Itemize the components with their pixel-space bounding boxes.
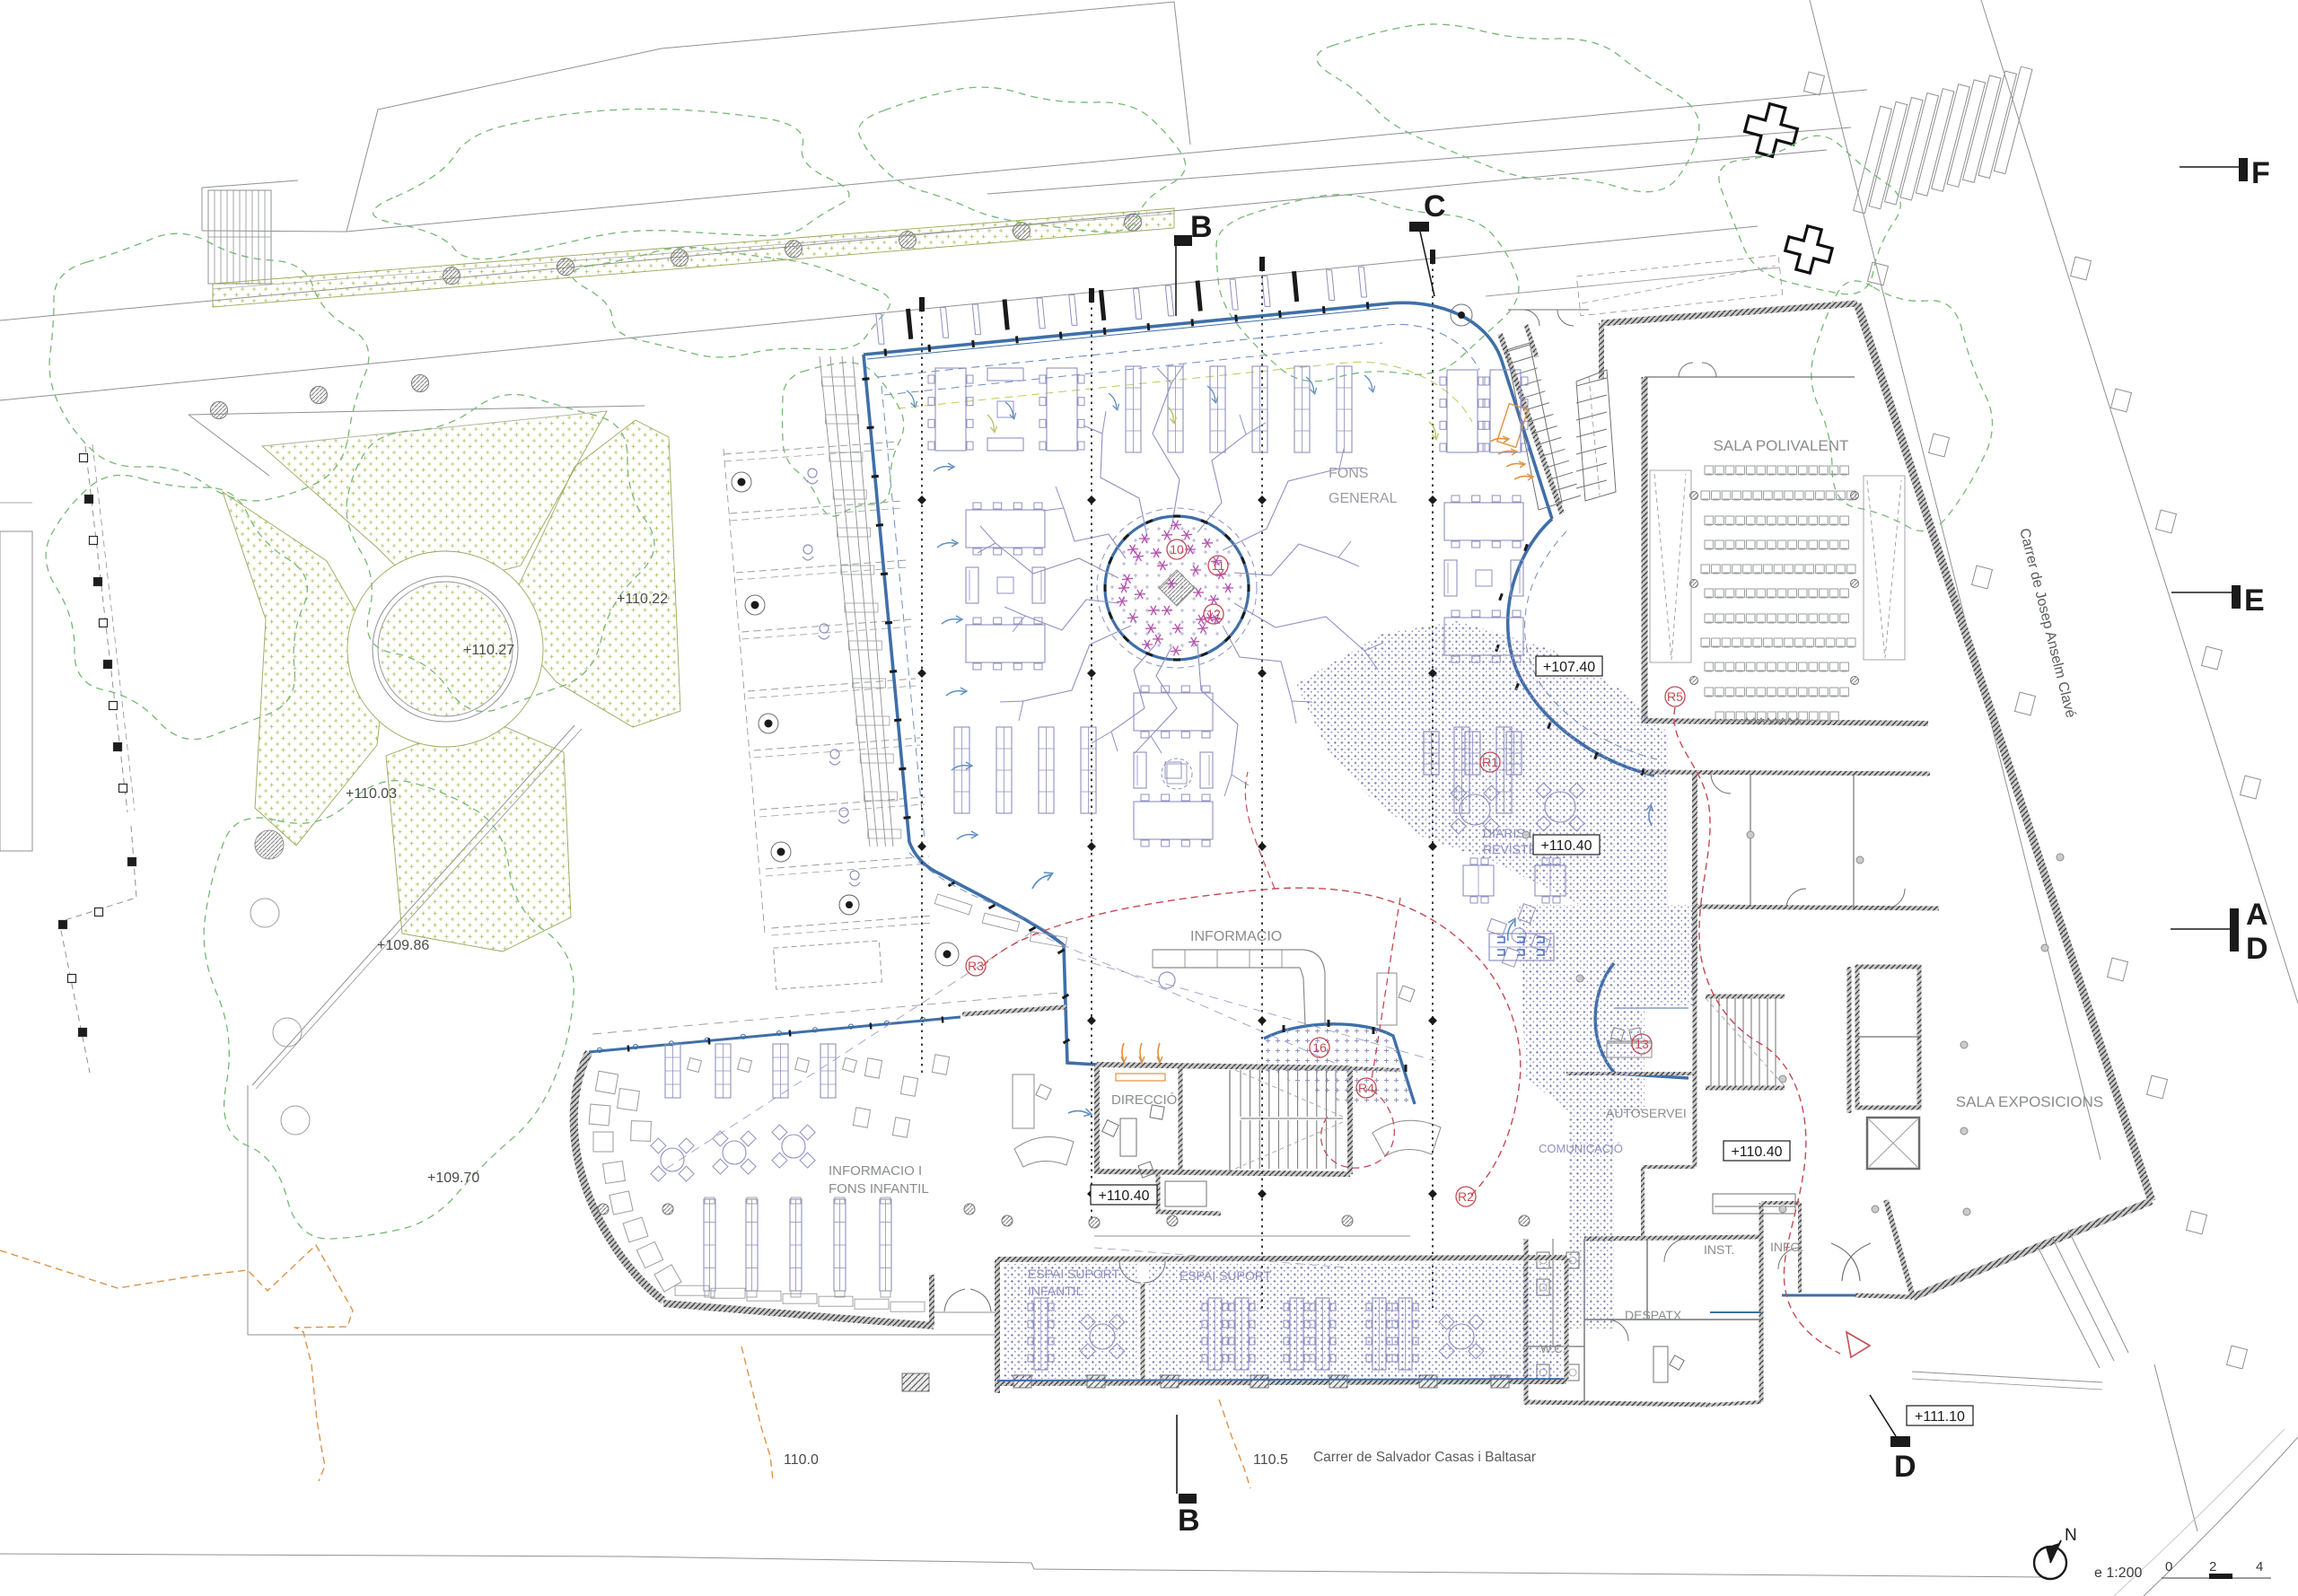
svg-text:C: C	[1424, 189, 1446, 224]
svg-text:INFORMACIO: INFORMACIO	[1190, 929, 1282, 944]
svg-text:SALA POLIVALENT: SALA POLIVALENT	[1714, 437, 1849, 454]
svg-text:W.C.: W.C.	[1540, 1342, 1566, 1355]
svg-text:e 1:200: e 1:200	[2094, 1565, 2142, 1581]
svg-text:N: N	[2065, 1526, 2077, 1545]
svg-text:COMUNICACIÓ: COMUNICACIÓ	[1539, 1142, 1623, 1155]
svg-text:ESPAI SUPORT: ESPAI SUPORT	[1180, 1268, 1272, 1283]
svg-text:FONS: FONS	[1329, 466, 1368, 481]
svg-text:+110.22: +110.22	[617, 592, 668, 607]
svg-text:2: 2	[2209, 1559, 2216, 1574]
svg-text:13: 13	[1635, 1037, 1649, 1051]
svg-text:D: D	[1894, 1450, 1916, 1484]
svg-text:R5: R5	[1667, 689, 1683, 704]
svg-text:+109.70: +109.70	[427, 1171, 479, 1186]
svg-text:110.0: 110.0	[784, 1452, 819, 1468]
svg-text:+109.86: +109.86	[377, 938, 429, 953]
svg-text:+110.40: +110.40	[1731, 1144, 1782, 1160]
svg-text:DIRECCIÓ: DIRECCIÓ	[1111, 1092, 1177, 1108]
svg-text:+110.40: +110.40	[1540, 838, 1592, 854]
svg-text:GENERAL: GENERAL	[1329, 491, 1398, 506]
svg-text:INST.: INST.	[1704, 1242, 1734, 1257]
svg-text:FONS INFANTIL: FONS INFANTIL	[829, 1181, 929, 1197]
svg-text:R3: R3	[968, 959, 984, 973]
svg-text:R1: R1	[1482, 755, 1498, 769]
svg-text:0: 0	[2165, 1559, 2172, 1574]
svg-text:R2: R2	[1458, 1189, 1474, 1204]
svg-text:SALA EXPOSICIONS: SALA EXPOSICIONS	[1956, 1093, 2103, 1110]
svg-text:AUTOSERVEI: AUTOSERVEI	[1606, 1106, 1687, 1120]
svg-text:B: B	[1178, 1504, 1200, 1538]
svg-text:+110.27: +110.27	[463, 643, 514, 658]
svg-text:16: 16	[1312, 1040, 1327, 1055]
svg-text:ESPAI SUPORT: ESPAI SUPORT	[1028, 1267, 1120, 1281]
svg-text:DESPATX: DESPATX	[1625, 1308, 1682, 1322]
svg-text:R4: R4	[1358, 1081, 1374, 1095]
svg-text:D: D	[2246, 932, 2268, 966]
svg-text:110.5: 110.5	[1253, 1452, 1288, 1468]
svg-text:INFANTIL: INFANTIL	[1028, 1284, 1083, 1298]
svg-text:4: 4	[2256, 1559, 2263, 1574]
svg-text:F: F	[2251, 156, 2270, 190]
svg-text:+107.40: +107.40	[1543, 660, 1595, 675]
svg-text:E: E	[2244, 583, 2265, 618]
svg-text:+110.40: +110.40	[1098, 1188, 1149, 1204]
svg-text:+111.10: +111.10	[1915, 1409, 1965, 1425]
svg-text:INFO.: INFO.	[1770, 1240, 1803, 1254]
svg-text:INFORMACIO I: INFORMACIO I	[829, 1163, 922, 1179]
svg-text:+110.03: +110.03	[346, 786, 397, 802]
svg-text:10: 10	[1170, 542, 1184, 557]
svg-text:A: A	[2246, 898, 2268, 932]
svg-text:11: 11	[1212, 558, 1225, 573]
svg-text:B: B	[1190, 210, 1213, 244]
svg-text:Carrer de Salvador Casas i Bal: Carrer de Salvador Casas i Baltasar	[1313, 1450, 1536, 1465]
svg-text:12: 12	[1206, 607, 1221, 621]
